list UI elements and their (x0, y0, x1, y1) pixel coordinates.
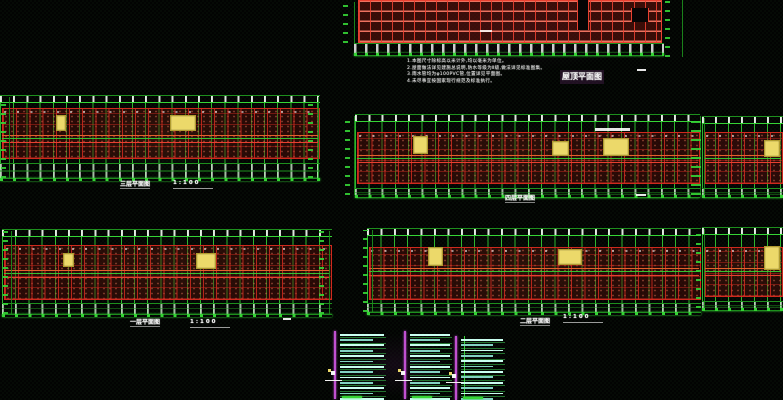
plan-1f[interactable] (2, 226, 332, 322)
top-dimension-ticks (0, 95, 320, 103)
tread-bar (340, 361, 373, 363)
note-line: 3.雨水管均为φ100PVC管,位置详见平面图。 (407, 72, 567, 79)
magenta-axis-line (404, 331, 406, 399)
bottom-dimension-strip (0, 163, 320, 179)
tread-bar (340, 377, 384, 379)
tread-bar (461, 371, 503, 373)
tread-bar (410, 350, 440, 352)
room-label-specks (4, 111, 316, 113)
tread-bar (340, 387, 384, 389)
white-annotation-dash (595, 128, 630, 131)
plan-4f-title[interactable]: 四层平面图 (505, 193, 535, 203)
plan-1f-title[interactable]: 一层平面图 (130, 317, 160, 327)
tread-bar (340, 371, 373, 373)
green-under-dash (342, 396, 362, 398)
stair-highlight (428, 247, 443, 266)
tread-bar (461, 355, 493, 357)
general-notes[interactable]: 1.本图尺寸除标高以米计外,均以毫米为单位。2.屋面做法详见建施总说明,防水等级… (407, 59, 567, 89)
plan-2f-title[interactable]: 二层平面图 (520, 316, 550, 326)
white-annotation-dash (480, 30, 492, 32)
stair-highlight (63, 253, 74, 267)
tread-bar (461, 366, 493, 368)
column-bubble-row (0, 178, 320, 181)
top-dimension-ticks (355, 114, 700, 122)
corridor-dimension-line (2, 138, 318, 139)
plan-3f-scale-label[interactable]: 1:100 (173, 180, 213, 189)
white-level-square (452, 374, 456, 378)
stair-detail-2[interactable] (404, 333, 454, 397)
tread-bar (410, 344, 450, 346)
right-axis-marks (307, 97, 319, 178)
corridor-dimension-line (357, 158, 698, 159)
tread-bar (410, 366, 450, 368)
corridor-dimension-line (704, 271, 781, 272)
right-axis-marks (318, 231, 330, 314)
plan-3f-title[interactable]: 三层平面图 (120, 179, 150, 189)
tread-bar (410, 339, 440, 341)
left-axis-marks (362, 230, 373, 312)
magenta-axis-line (455, 336, 457, 400)
note-line: 1.本图尺寸除标高以米计外,均以毫米为单位。 (407, 59, 567, 66)
column-bubble-row (367, 312, 701, 315)
stair-highlight (764, 246, 780, 270)
corridor-line (357, 155, 698, 163)
column-bubble-row (354, 53, 664, 56)
green-under-dash (463, 397, 483, 399)
white-annotation-dash (637, 69, 646, 71)
right-axis-marks (664, 0, 683, 57)
corridor-dimension-line (369, 271, 699, 272)
tread-bar (340, 393, 373, 395)
white-level-square (331, 371, 335, 375)
tread-bar (410, 371, 440, 373)
roof-plan[interactable] (342, 0, 688, 58)
stair-detail-1[interactable] (334, 333, 388, 397)
tread-bar (461, 393, 503, 395)
plan-2f-scale-label[interactable]: 1:100 (563, 314, 603, 323)
tread-bar (410, 382, 440, 384)
plan-2f[interactable] (367, 226, 701, 318)
column-bubble-row (702, 195, 783, 198)
left-axis-marks (695, 229, 705, 308)
room-label-specks (359, 135, 696, 137)
expansion-joint-gap (577, 0, 589, 30)
note-line: 4.未尽事宜按国家现行规范及标准执行。 (407, 79, 567, 86)
tread-bar (410, 398, 450, 400)
corridor-line (2, 135, 318, 143)
plan-right-lower[interactable] (702, 224, 783, 316)
tread-bar (340, 355, 384, 357)
white-level-square (401, 371, 405, 375)
stair-highlight (552, 141, 569, 156)
tread-bar-stack (410, 333, 452, 394)
tread-bar (340, 366, 384, 368)
corridor-line (4, 270, 330, 278)
room-label-specks (6, 248, 328, 250)
tread-bar (340, 344, 384, 346)
corridor-dimension-line (704, 158, 781, 159)
tread-bar (461, 350, 503, 352)
stair-highlight (603, 138, 629, 156)
stair-detail-3[interactable] (455, 338, 507, 398)
tread-bar (340, 350, 373, 352)
stair-highlight (558, 249, 582, 265)
corridor-line (369, 268, 699, 276)
tread-bar (410, 334, 450, 336)
plan-right-upper[interactable] (702, 111, 783, 203)
tread-bar (410, 361, 440, 363)
plan-3f[interactable] (0, 93, 320, 189)
left-axis-marks (2, 231, 12, 314)
white-landing-line (446, 382, 463, 384)
stair-highlight (413, 136, 428, 154)
cad-canvas[interactable]: 三层平面图1:100四层平面图一层平面图1:100二层平面图1:100屋顶平面图… (0, 0, 783, 400)
plan-4f[interactable] (355, 111, 700, 203)
tread-bar (340, 334, 384, 336)
stair-highlight (764, 140, 780, 157)
green-under-dash (412, 396, 432, 398)
stair-highlight (56, 115, 66, 131)
corridor-dimension-line (4, 273, 330, 274)
room-label-specks (706, 135, 779, 137)
left-axis-marks (0, 97, 10, 178)
left-axis-marks (342, 2, 355, 43)
plan-1f-scale-label[interactable]: 1:100 (190, 319, 230, 328)
roof-slab-grid (358, 0, 662, 43)
tread-bar (461, 339, 503, 341)
white-annotation-dash (636, 194, 646, 196)
tread-bar (461, 344, 493, 346)
stair-highlight (196, 253, 216, 269)
tread-bar (461, 387, 493, 389)
white-annotation-dash (283, 318, 291, 320)
tread-bar (461, 382, 503, 384)
left-axis-marks (695, 118, 705, 195)
tread-bar (461, 360, 503, 362)
expansion-joint-gap (631, 8, 649, 22)
tread-bar (340, 382, 373, 384)
top-dimension-ticks (367, 228, 701, 236)
column-bubble-row (2, 314, 332, 317)
left-axis-marks (344, 116, 355, 195)
tread-bar (340, 398, 384, 400)
room-label-specks (371, 250, 697, 252)
white-landing-line (395, 380, 412, 382)
top-dimension-ticks (702, 116, 783, 124)
tread-bar (410, 387, 450, 389)
top-dimension-ticks (2, 229, 332, 237)
white-landing-line (325, 380, 342, 382)
tread-bar (410, 377, 450, 379)
tread-bar (461, 376, 493, 378)
tread-bar (340, 339, 373, 341)
magenta-axis-line (334, 331, 336, 399)
tread-bar (410, 393, 440, 395)
tread-bar-stack (340, 333, 386, 394)
wall-band-layer (2, 108, 320, 159)
tread-bar-stack (461, 338, 505, 395)
stair-highlight (170, 115, 196, 131)
tread-bar (410, 355, 450, 357)
top-dimension-ticks (702, 227, 783, 235)
column-bubble-row (702, 308, 783, 311)
